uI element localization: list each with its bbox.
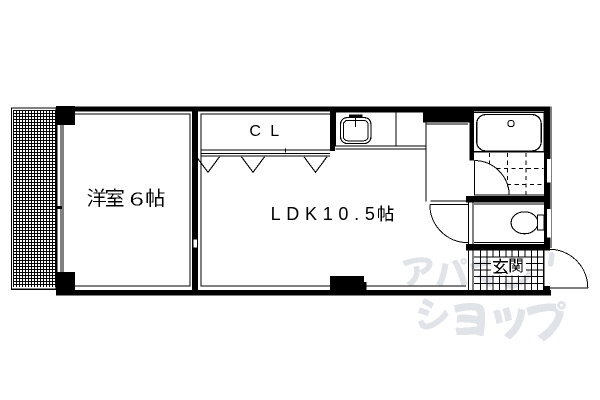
svg-text:LDK10.5: LDK10.5 — [271, 204, 381, 224]
